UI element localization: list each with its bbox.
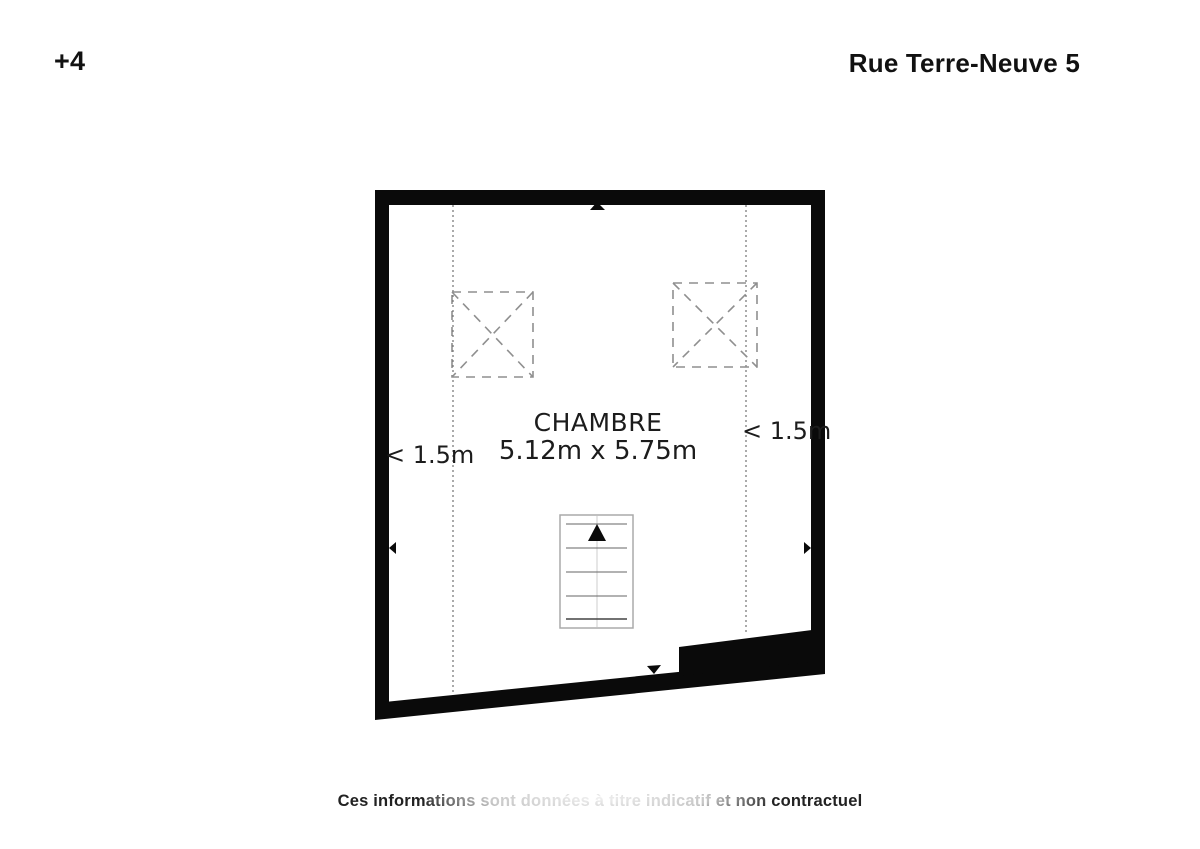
disclaimer-text: Ces informations sont données à titre in… (0, 792, 1200, 811)
arrow-left-icon (389, 542, 396, 554)
skylight-cross-icon (452, 292, 533, 377)
wall-top (375, 190, 825, 205)
floorplan-page: { "header": { "floor_label": "+4", "addr… (0, 0, 1200, 849)
ceiling-height-label-left: < 1.5m (385, 441, 474, 469)
room-dimensions-label: 5.12m x 5.75m (448, 436, 748, 466)
staircase-icon (560, 515, 633, 628)
ceiling-height-label-right: < 1.5m (742, 417, 831, 445)
skylight-cross-icon (673, 283, 757, 367)
arrow-right-icon (804, 542, 811, 554)
arrow-down-icon (647, 665, 661, 674)
room-name-label: CHAMBRE (448, 408, 748, 437)
